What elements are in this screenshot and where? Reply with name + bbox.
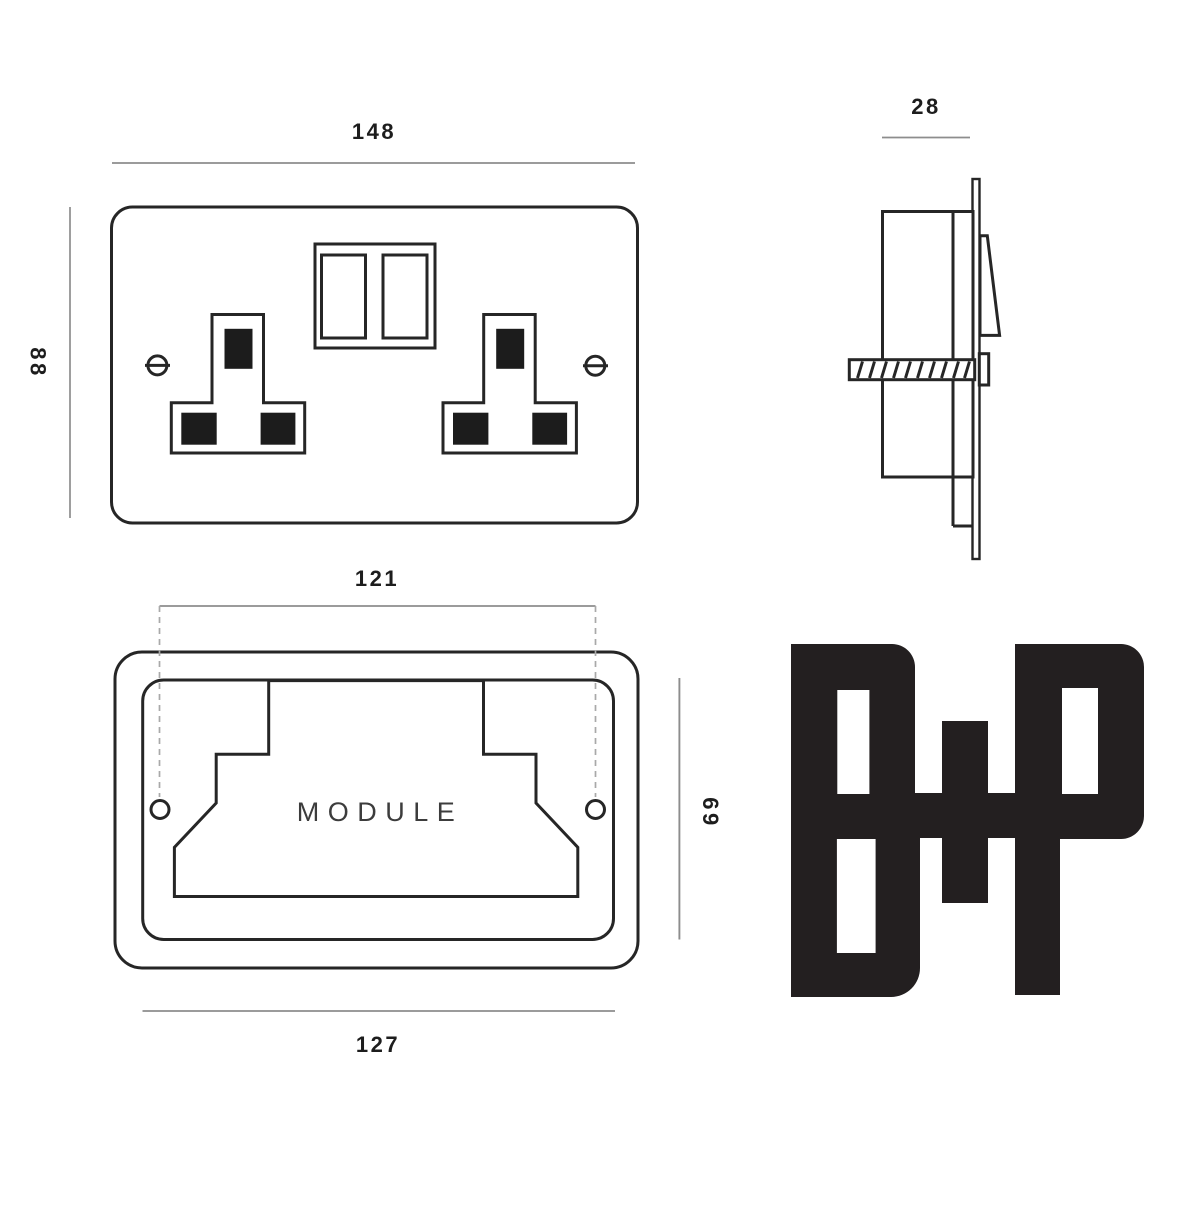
svg-text:148: 148 xyxy=(352,119,396,144)
svg-text:121: 121 xyxy=(355,566,399,591)
svg-text:88: 88 xyxy=(26,347,51,378)
svg-text:127: 127 xyxy=(356,1032,400,1057)
svg-text:28: 28 xyxy=(911,94,940,119)
svg-text:69: 69 xyxy=(698,797,723,828)
svg-text:MODULE: MODULE xyxy=(297,797,464,827)
